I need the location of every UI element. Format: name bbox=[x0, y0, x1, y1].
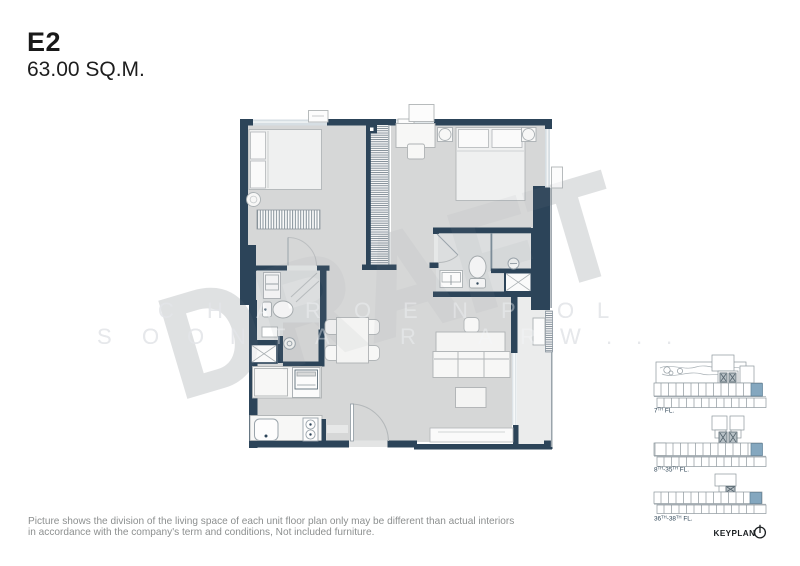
svg-text:S: S bbox=[97, 324, 112, 349]
svg-text:H: H bbox=[207, 298, 223, 323]
svg-text:36TH-38TH FL.: 36TH-38TH FL. bbox=[654, 515, 693, 523]
svg-text:.: . bbox=[666, 324, 672, 349]
svg-text:A: A bbox=[315, 324, 330, 349]
svg-text:KEYPLAN: KEYPLAN bbox=[714, 529, 756, 538]
svg-text:R: R bbox=[305, 298, 321, 323]
svg-text:7TH FL.: 7TH FL. bbox=[654, 407, 674, 415]
svg-text:.: . bbox=[606, 324, 612, 349]
svg-text:L: L bbox=[597, 298, 609, 323]
svg-text:A: A bbox=[478, 324, 493, 349]
svg-text:T: T bbox=[272, 324, 285, 349]
svg-text:O: O bbox=[354, 298, 371, 323]
svg-text:E: E bbox=[403, 298, 418, 323]
svg-text:.: . bbox=[636, 324, 642, 349]
svg-text:8TH-35TH FL.: 8TH-35TH FL. bbox=[654, 466, 689, 474]
svg-text:N: N bbox=[230, 324, 246, 349]
svg-text:O: O bbox=[187, 324, 204, 349]
svg-text:R: R bbox=[520, 324, 536, 349]
svg-text:R: R bbox=[400, 324, 416, 349]
svg-text:W: W bbox=[560, 324, 581, 349]
svg-text:N: N bbox=[452, 298, 468, 323]
svg-text:P: P bbox=[501, 298, 516, 323]
svg-text:A: A bbox=[256, 298, 271, 323]
svg-text:O: O bbox=[557, 298, 574, 323]
svg-text:C: C bbox=[158, 298, 174, 323]
svg-text:O: O bbox=[142, 324, 159, 349]
